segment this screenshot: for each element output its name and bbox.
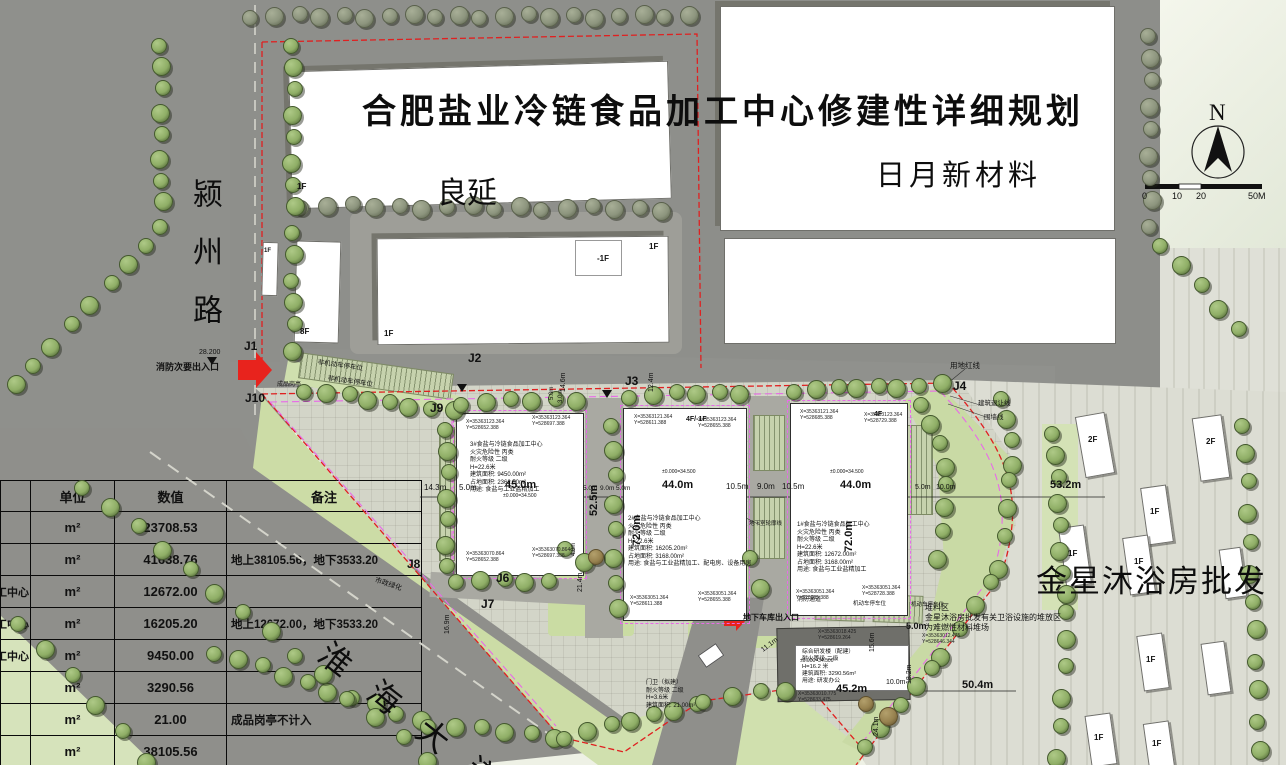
info-line: 耐火等级 二级 xyxy=(802,656,856,663)
bicycle-parking-label: 非机动车停车位 xyxy=(317,360,363,373)
coord-y: Y=528619.264 xyxy=(818,636,856,642)
bicycle-parking-label: 非机动车停车位 xyxy=(327,376,373,389)
floor-tag: 1F xyxy=(1146,656,1155,664)
elevation-label: 28.200 xyxy=(199,349,220,356)
coord-y: Y=528728.388 xyxy=(862,592,900,598)
dimension-label: 12.4m xyxy=(648,373,655,392)
coord-y: Y=528685.388 xyxy=(796,596,834,602)
coord-y: Y=528697.388 xyxy=(532,554,570,560)
corner-coordinate: X=35363010.775Y=528633.475 xyxy=(798,692,836,704)
level-marker: ±0.000=34.500 xyxy=(662,470,695,475)
coord-y: Y=528652.388 xyxy=(466,558,504,564)
info-line: 火灾危险性 丙类 xyxy=(797,530,870,538)
info-line: H=22.6米 xyxy=(470,465,543,473)
info-line: 耐火等级 二级 xyxy=(470,457,543,465)
floor-tag: 1F xyxy=(1134,558,1143,566)
floor-tag: 8F xyxy=(300,328,309,336)
info-line: 用途: 食盐与工业盐精加工 xyxy=(470,487,543,495)
floor-tag: 1F xyxy=(384,330,393,338)
fire-secondary-entrance-label: 消防次要出入口 xyxy=(156,363,219,372)
dimension-label: 14.3m xyxy=(424,484,446,492)
dimension-label: 15.6m xyxy=(869,633,876,652)
info-line: 建筑面积: 12672.00m² xyxy=(797,552,870,560)
corner-coordinate: X=35363123.364Y=528697.388 xyxy=(532,416,570,428)
level-marker: ±0.000=34.500 xyxy=(503,494,536,499)
dimension-label: 16.9m xyxy=(444,615,451,634)
dimension-label: 5.0m xyxy=(915,484,931,491)
car-parking-label: 机动车停车位 xyxy=(853,602,886,608)
setback-line-label: 建筑退让线 xyxy=(978,401,1011,408)
dimension-label: 10.5m xyxy=(782,483,804,491)
coord-y: Y=528655.388 xyxy=(698,598,736,604)
floor-tag: 1F xyxy=(649,243,658,251)
corner-coordinate: X=35363123.364Y=528729.388 xyxy=(864,413,902,425)
floor-tag: 1F xyxy=(297,183,306,191)
dimension-label: 53.2m xyxy=(1050,480,1081,492)
coord-y: Y=528655.388 xyxy=(698,424,736,430)
corner-coordinate: X=35363121.364Y=528685.388 xyxy=(800,410,838,422)
corner-coordinate: X=35363051.364Y=528685.388 xyxy=(796,590,834,602)
corner-coordinate: X=35363070.864Y=528652.388 xyxy=(466,552,504,564)
level-marker: ±0.000=34.500 xyxy=(830,470,863,475)
building2-info: 2#食盐与冷链食品加工中心火灾危险性 丙类耐火等级 二级H=22.6米建筑面积:… xyxy=(628,516,751,569)
wall-line-label: 围墙线 xyxy=(984,415,1004,422)
gatehouse-info: 门卫（拟建）耐火等级 二级H=3.6米建筑面积: 21.00m² xyxy=(646,680,695,710)
info-line: 堆料区 xyxy=(925,603,1061,613)
dimension-label: 9.0m xyxy=(757,483,775,491)
junction-label: J8 xyxy=(407,558,420,571)
info-line: 建筑面积: 16205.20m² xyxy=(628,546,751,554)
dimension-label: 10.0m xyxy=(936,484,955,491)
corner-coordinate: X=35363012.475Y=528646.344 xyxy=(922,634,960,646)
coord-y: Y=528611.388 xyxy=(634,421,672,427)
info-line: 3#食盐与冷链食品加工中心 xyxy=(470,442,543,450)
rd-building-info: 综合研发楼（配建）耐火等级 二级H=16.2 米建筑面积: 3290.56m²用… xyxy=(802,649,856,685)
info-line: 建筑面积: 21.00m² xyxy=(646,703,695,711)
floor-tag: 1F xyxy=(1068,550,1077,558)
dimension-label: 5.0m xyxy=(616,486,630,493)
dimension-label: 3.0m xyxy=(558,390,564,403)
info-line: 2#食盐与冷链食品加工中心 xyxy=(628,516,751,524)
junction-label: J1 xyxy=(244,340,257,353)
info-line: 耐火等级 二级 xyxy=(797,537,870,545)
stockyard-note: 堆料区金星沐浴房批发有关卫浴设施的堆放区为难燃性材料堆场 xyxy=(925,603,1061,633)
dimension-label: 4.0m xyxy=(571,543,577,556)
dimension-label: 44.0m xyxy=(662,480,693,492)
info-line: 用途: 研发办公 xyxy=(802,678,856,685)
info-line: H=3.6米 xyxy=(646,695,695,703)
floor-tag: 2F xyxy=(1088,436,1097,444)
floor-tag: 2F xyxy=(1206,438,1215,446)
basement-outline-label: 地下室轮廓线 xyxy=(749,522,782,528)
info-line: 占地面积: 3168.00m² xyxy=(797,560,870,568)
dimension-label: 24.1m xyxy=(873,717,880,736)
building1-info: 1#食盐与冷链食品加工中心火灾危险性 丙类耐火等级 二级H=22.6米建筑面积:… xyxy=(797,522,870,575)
floor-tag: 1F xyxy=(1150,508,1159,516)
info-line: 用途: 食盐与工业盐精加工、配电房、设备用房 xyxy=(628,561,751,569)
coord-y: Y=528633.475 xyxy=(798,698,836,704)
info-line: 占地面积: 3168.00m² xyxy=(628,554,751,562)
corner-coordinate: X=35363051.364Y=528728.388 xyxy=(862,586,900,598)
junction-label: J9 xyxy=(430,402,443,415)
dimension-label: 5.0m xyxy=(549,387,555,400)
info-line: 门卫（拟建） xyxy=(646,680,695,688)
floor-tag: 1F xyxy=(1094,734,1103,742)
info-line: 占地面积: 2362.50m² xyxy=(470,480,543,488)
junction-label: J6 xyxy=(496,572,509,585)
dimension-label: 45.2m xyxy=(836,684,867,696)
dimension-label: 5.0m xyxy=(583,486,597,493)
coord-y: Y=528729.388 xyxy=(864,419,902,425)
info-line: 火灾危险性 丙类 xyxy=(470,450,543,458)
dimension-label: 21.4m xyxy=(577,573,584,592)
junction-label: J4 xyxy=(953,380,966,393)
municipal-green-label: 市政绿化 xyxy=(374,577,403,593)
dimension-label: 50.4m xyxy=(962,680,993,692)
info-line: 火灾危险性 丙类 xyxy=(628,524,751,532)
dimension-label: 5.0m xyxy=(906,622,927,631)
corner-coordinate: X=35363123.364Y=528655.388 xyxy=(698,418,736,430)
corner-coordinate: X=35363051.364Y=528655.388 xyxy=(698,592,736,604)
info-line: 耐火等级 二级 xyxy=(628,531,751,539)
coord-y: Y=528611.388 xyxy=(630,602,668,608)
corner-coordinate: X=35363051.364Y=528611.388 xyxy=(630,596,668,608)
dimension-label: 44.0m xyxy=(840,480,871,492)
info-line: 1#食盐与冷链食品加工中心 xyxy=(797,522,870,530)
info-line: 金星沐浴房批发有关卫浴设施的堆放区 xyxy=(925,613,1061,623)
building3-info: 3#食盐与冷链食品加工中心火灾危险性 丙类耐火等级 二级H=22.6米建筑面积:… xyxy=(470,442,543,495)
info-line: H=22.6米 xyxy=(797,545,870,553)
garage-entrance-label: 地下车库出入口 xyxy=(743,614,799,622)
coord-y: Y=528652.388 xyxy=(466,426,504,432)
junction-label: J2 xyxy=(468,352,481,365)
coord-y: Y=528697.388 xyxy=(532,422,570,428)
dimension-label: 10.5m xyxy=(726,483,748,491)
floor-tag: 1F xyxy=(264,248,271,254)
floor-tag: 1F xyxy=(1152,740,1161,748)
junction-label: J10 xyxy=(245,392,265,405)
info-line: H=22.6米 xyxy=(628,539,751,547)
corner-coordinate: X=35363121.364Y=528611.388 xyxy=(634,415,672,427)
coord-y: Y=528685.388 xyxy=(800,416,838,422)
junction-label: J7 xyxy=(481,598,494,611)
info-line: 建筑面积: 3290.56m² xyxy=(802,671,856,678)
info-line: 耐火等级 二级 xyxy=(646,688,695,696)
dimension-label: 10.0m xyxy=(886,679,905,686)
dimension-label: 11.1m xyxy=(760,637,780,654)
coord-y: Y=528646.344 xyxy=(922,640,960,646)
info-line: 为难燃性材料堆场 xyxy=(925,623,1061,633)
corner-coordinate: X=35363070.864Y=528697.388 xyxy=(532,548,570,560)
corner-coordinate: X=35363123.364Y=528652.388 xyxy=(466,420,504,432)
info-line: 用途: 食盐与工业盐精加工 xyxy=(797,567,870,575)
floor-tag: -1F xyxy=(597,255,609,263)
info-line: H=16.2 米 xyxy=(802,664,856,671)
dimension-label: 9.0m xyxy=(600,486,614,493)
dimension-label: 18.2m xyxy=(906,665,913,684)
guard-booth-label: 成品岗亭 xyxy=(277,382,301,388)
site-plan: 单位数值备注m²23708.53m²41638.76地上38105.56，地下3… xyxy=(0,0,1286,765)
junction-label: J3 xyxy=(625,375,638,388)
info-line: 建筑面积: 9450.00m² xyxy=(470,472,543,480)
red-line-label: 用地红线 xyxy=(950,362,980,370)
corner-coordinate: X=35363018.425Y=528619.264 xyxy=(818,630,856,642)
